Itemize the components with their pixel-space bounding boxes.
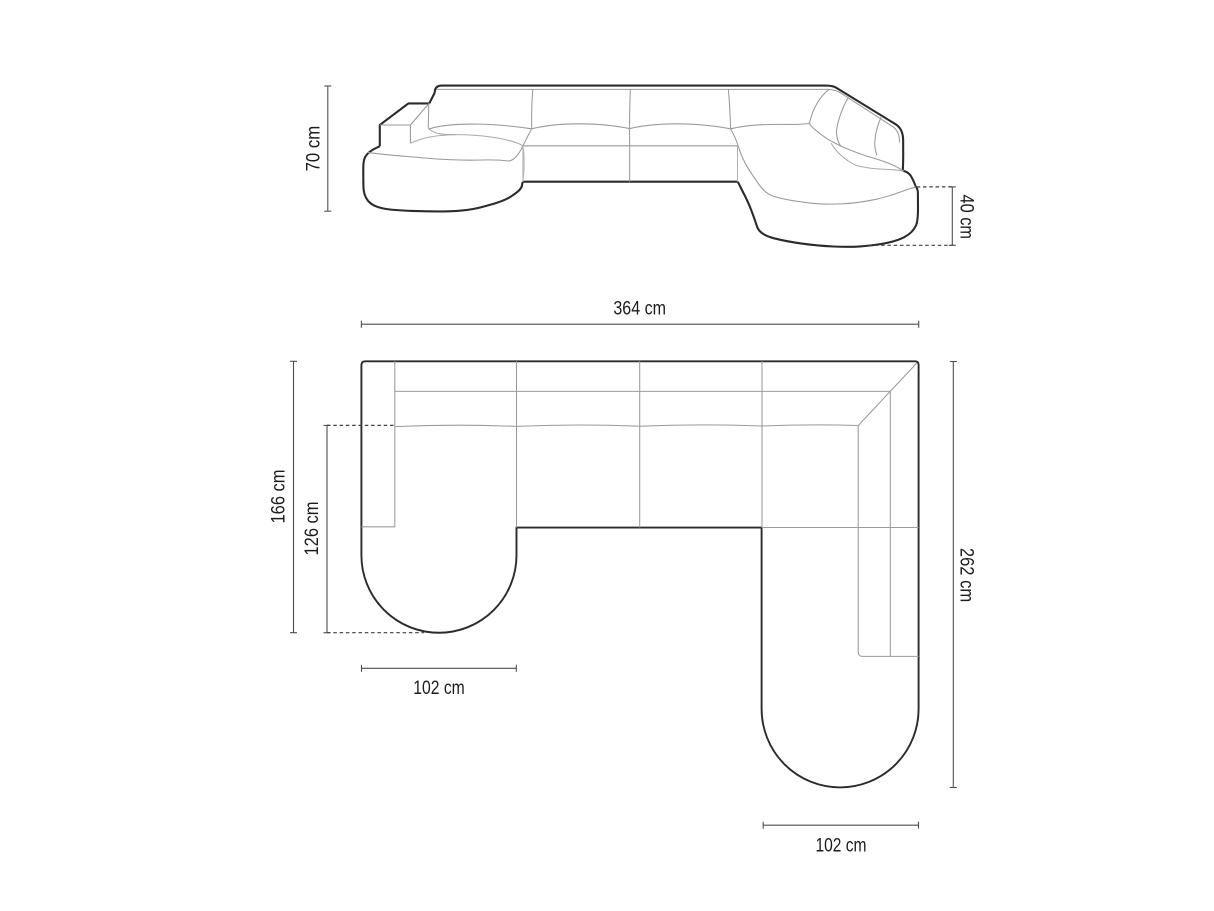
svg-text:166 cm: 166 cm: [269, 470, 290, 524]
svg-text:70 cm: 70 cm: [303, 126, 324, 172]
svg-text:40 cm: 40 cm: [955, 195, 976, 240]
svg-text:102 cm: 102 cm: [815, 835, 866, 856]
svg-text:364 cm: 364 cm: [613, 299, 666, 320]
svg-text:102 cm: 102 cm: [413, 678, 465, 699]
svg-text:262 cm: 262 cm: [956, 548, 977, 602]
svg-text:126 cm: 126 cm: [302, 502, 323, 556]
